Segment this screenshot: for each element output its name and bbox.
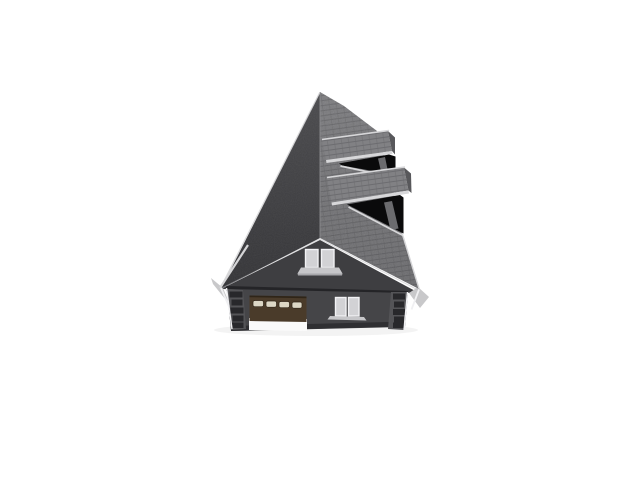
garage-door-window (253, 301, 264, 307)
quoin-block (231, 308, 244, 314)
garage-door-window (266, 301, 277, 307)
gable-window-left-pane (306, 250, 319, 268)
quoin-block (232, 300, 243, 306)
quoin-block (230, 292, 243, 298)
garage-door-window (279, 302, 290, 308)
quoin-block (394, 317, 404, 323)
first-floor-window-right-pane (349, 298, 360, 317)
quoin-block (233, 316, 244, 322)
gable-window-sill-edge (298, 274, 343, 276)
garage-door (250, 296, 307, 323)
quoin-block (393, 309, 405, 315)
gable-window-sill (298, 268, 343, 274)
quoin-block (393, 323, 404, 329)
house-render-canvas (0, 0, 640, 480)
garage-door-window (292, 302, 302, 308)
quoin-block (394, 302, 404, 308)
house-render (0, 0, 640, 480)
garage (249, 296, 307, 332)
quoin-block (393, 294, 405, 300)
quoin-block (232, 323, 244, 329)
gable-window-right-pane (322, 250, 335, 268)
first-floor-window-left-pane (336, 298, 347, 317)
